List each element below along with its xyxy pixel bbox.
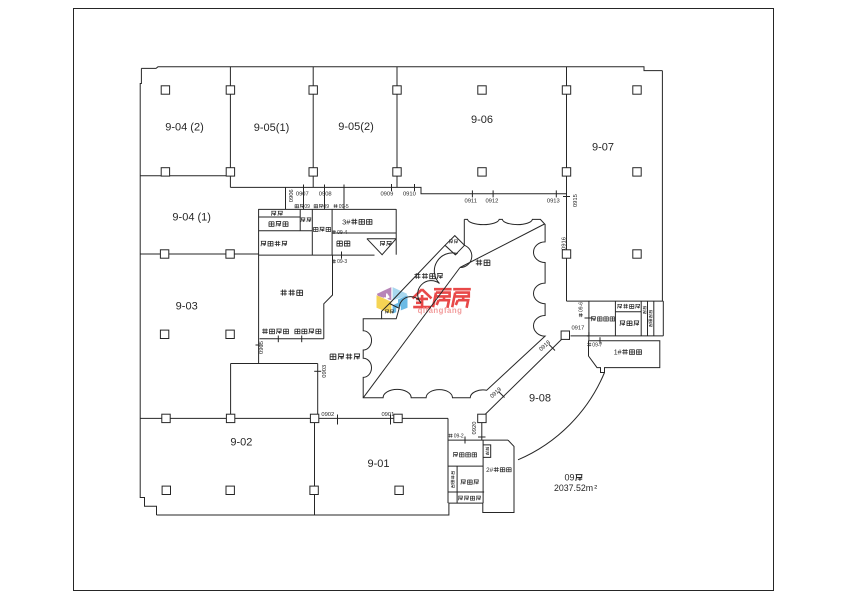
svg-text:²: ² [594,483,597,493]
svg-text:qifangfang: qifangfang [418,306,463,315]
svg-text:9-03: 9-03 [176,301,198,313]
svg-text:9-01: 9-01 [367,458,389,470]
svg-text:0912: 0912 [485,199,498,205]
svg-text:9-05(1): 9-05(1) [254,122,289,134]
svg-text:0915: 0915 [573,194,579,207]
svg-text:3#: 3# [342,217,351,226]
svg-text:0902: 0902 [321,412,334,418]
svg-text:2#: 2# [486,467,494,474]
svg-text:0907: 0907 [296,191,309,197]
svg-text:09-2: 09-2 [454,434,464,440]
svg-text:0909: 0909 [380,191,393,197]
svg-text:1#: 1# [614,349,622,356]
svg-text:9-04 (2): 9-04 (2) [165,122,204,134]
svg-text:09-4: 09-4 [337,230,347,236]
svg-text:0906: 0906 [289,189,295,202]
svg-text:0910: 0910 [403,191,416,197]
svg-text:09: 09 [323,204,329,210]
svg-text:0901: 0901 [381,412,394,418]
svg-text:0920: 0920 [472,422,478,435]
svg-text:9-08: 9-08 [529,393,551,405]
svg-text:0913: 0913 [547,199,560,205]
svg-text:09-3: 09-3 [337,259,347,265]
svg-text:0911: 0911 [464,199,476,205]
svg-text:0916: 0916 [562,237,568,250]
svg-text:9-05(2): 9-05(2) [338,121,373,133]
svg-text:0905: 0905 [259,341,265,354]
svg-text:9-02: 9-02 [230,437,252,449]
svg-text:0903: 0903 [322,365,328,378]
svg-text:09-5: 09-5 [339,204,349,210]
svg-text:09: 09 [304,204,310,210]
svg-text:9-06: 9-06 [471,114,493,126]
svg-text:0917: 0917 [571,326,584,332]
svg-text:09-7: 09-7 [592,342,602,348]
svg-text:2037.52m: 2037.52m [554,483,593,493]
svg-text:09: 09 [564,473,574,483]
svg-text:09-6: 09-6 [579,302,585,312]
svg-text:9-04 (1): 9-04 (1) [172,212,211,224]
svg-text:9-07: 9-07 [592,142,614,154]
svg-text:0908: 0908 [319,191,332,197]
